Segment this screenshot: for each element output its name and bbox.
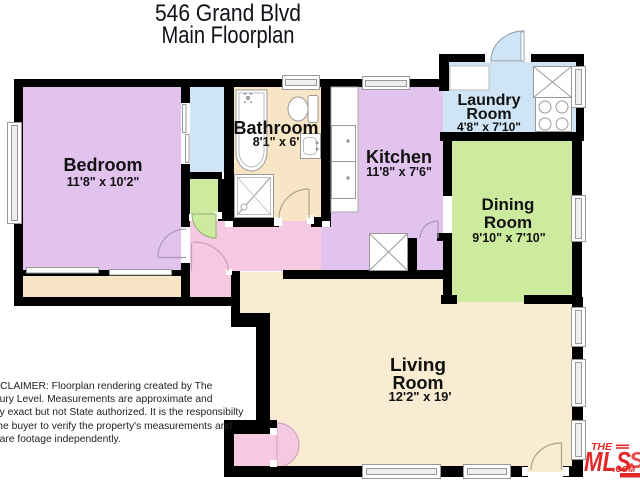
svg-text:square footage independently.: square footage independently.: [0, 434, 121, 445]
svg-text:11'8" x 10'2": 11'8" x 10'2": [67, 175, 140, 189]
svg-text:DISCLAIMER: Floorplan renderin: DISCLAIMER: Floorplan rendering created …: [0, 381, 213, 392]
svg-text:Main Floorplan: Main Floorplan: [162, 22, 295, 49]
svg-text:Room: Room: [484, 213, 532, 232]
svg-text:fairly exact but not State aut: fairly exact but not State authorized. I…: [0, 407, 244, 418]
svg-text:.COM: .COM: [613, 464, 636, 474]
svg-text:Luxury Level. Measurements a: Luxury Level. Measurements are approxima…: [0, 394, 213, 405]
svg-text:of the buyer to verify the pro: of the buyer to verify the property's me…: [0, 421, 232, 432]
svg-text:Kitchen: Kitchen: [366, 147, 432, 167]
svg-text:9'10" x 7'10": 9'10" x 7'10": [472, 231, 545, 245]
svg-text:8'1" x 6': 8'1" x 6': [253, 135, 300, 149]
svg-text:Living: Living: [390, 355, 446, 375]
svg-text:11'8" x 7'6": 11'8" x 7'6": [366, 165, 432, 179]
svg-text:Room: Room: [466, 106, 511, 123]
svg-text:Dining: Dining: [482, 195, 535, 214]
svg-text:4'8" x 7'10": 4'8" x 7'10": [457, 122, 521, 134]
svg-text:12'2" x 19': 12'2" x 19': [389, 389, 452, 404]
svg-text:Bedroom: Bedroom: [63, 155, 142, 175]
